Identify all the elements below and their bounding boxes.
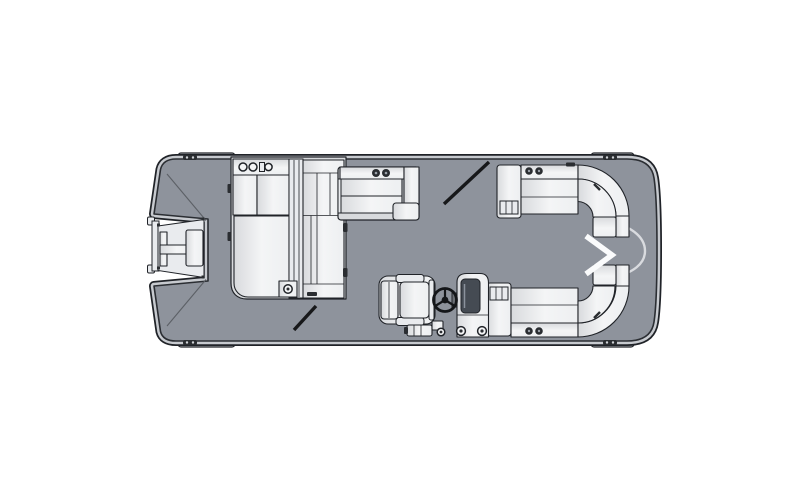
cleat-icon [603,155,617,160]
backrest [511,323,578,337]
speaker-center [480,329,483,332]
cupholder-center [538,170,540,172]
latch [260,163,265,172]
boat-floorplan-diagram [0,0,800,500]
hinge-tab [228,232,232,241]
lounge-cushion [521,179,578,214]
seatback-divider [289,159,303,298]
cupholder-center [385,172,388,175]
backrest-end [616,265,629,286]
cupholder-center [528,330,530,332]
hinge-tab [343,268,348,277]
platform-corner-bolt [157,267,160,270]
cupholder [249,163,257,171]
side-panel [404,167,419,204]
gauge-center [440,331,443,334]
bench-cushion [340,179,402,196]
cupholder-center [287,288,290,291]
port-mid-couch [338,167,419,220]
platform-corner-bolt [202,276,205,279]
cupholder-center [538,330,540,332]
cupholder [239,163,247,171]
platform-corner-bolt [202,218,205,221]
platform-corner-bolt [157,224,160,227]
backrest-panel [233,175,257,215]
hinge-tab [343,223,348,232]
lounge-cushion [511,288,578,323]
cleat-icon [183,155,197,160]
armrest-detail [490,287,508,300]
hinge-tab [566,163,575,167]
hinge-tab [228,184,232,193]
captain-chair [379,275,435,326]
swim-platform [148,217,205,279]
floorplan-canvas [0,0,800,500]
chair-backrest [381,281,398,319]
end-lip [338,179,341,213]
hinge-tab [307,292,317,296]
cleat-icon [183,340,197,345]
chair-cushion [400,282,429,318]
armrest-detail [500,201,518,214]
armrest [393,203,419,220]
cupholder [265,163,272,170]
stern-lounge-group [228,157,348,299]
cleat-icon [603,340,617,345]
cupholder-center [375,172,378,175]
chair-armrest [396,318,424,326]
speaker-center [459,329,462,332]
backrest-panel [257,175,289,215]
chair-armrest [396,275,424,283]
step-accessory [407,325,432,336]
hinge-tab [404,327,408,334]
cupholder-center [528,170,530,172]
end-cushion [593,217,616,237]
backrest-end [616,216,629,237]
